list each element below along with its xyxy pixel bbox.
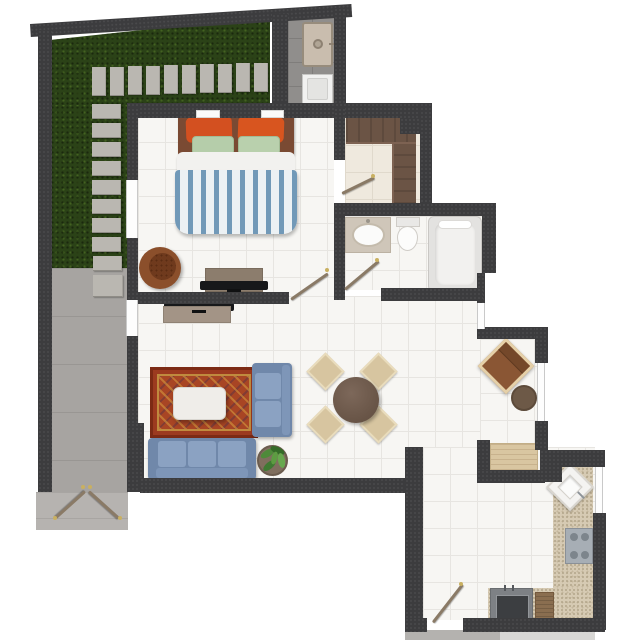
paver-stone [92,104,121,119]
burner [581,533,589,541]
utility-sink [302,22,333,67]
closet-corner-block [400,118,420,134]
nook-wall-right-lower [535,421,548,450]
coffee-table [173,387,226,420]
paver-stone [92,67,106,96]
corner-sink-faucet [577,491,585,499]
burner [570,551,578,559]
bedroom-wall-bottom [127,292,289,304]
round-chair-cushion [149,253,176,280]
bathtub [428,216,482,292]
unit-faucet [512,585,514,591]
chaise-cushion [255,401,281,427]
bathtub-pillow [438,220,472,229]
kitchen-wall-top [560,450,605,467]
oven-sink-unit [490,588,533,622]
bedroom-window [126,180,138,238]
vanity-faucet [366,219,370,223]
sofa-cushion [188,441,216,467]
round-lounge-chair [139,247,181,289]
burner [570,533,578,541]
nook-window [537,363,545,421]
unit-basin [496,595,529,619]
nook-wall-right-upper [535,327,548,363]
dining-table [333,377,379,423]
built-in-counter [490,443,538,471]
paver-stone [218,64,232,93]
living-wall-bottom [140,478,405,493]
bathroom-wall-top [334,203,495,216]
kitchen-wall-bottom-left [405,618,427,632]
kitchen-door-handle [459,582,463,586]
niche-wall-bottom [477,470,545,483]
paver-stone [92,237,121,252]
paver-stone [92,123,121,138]
bathroom-wall-right [482,203,496,273]
paver-stone [200,64,214,93]
entry-door-hinge [118,516,122,520]
living-tv-stand [192,310,206,313]
paver-stone [92,161,121,176]
chaise-back [282,365,290,435]
wall-shelf-right [261,110,284,118]
kitchen-wall-bottom-right [463,618,605,632]
paver-stone [254,63,268,92]
bathroom-door-handle [375,258,379,262]
sofa-chaise [252,363,292,437]
cooktop [565,528,593,564]
paver-stone [236,63,250,92]
paver-stone [93,275,123,297]
sofa-cushion [218,441,246,467]
kitchen-wall-right [593,513,606,630]
laundry-wall-left [272,14,288,110]
sofa-three-seat [148,438,256,480]
entry-porch [36,492,128,530]
paver-stone [146,66,160,95]
utility-sink-drain [313,39,323,49]
entry-door-handle [81,485,85,489]
paver-stone [92,142,121,157]
paver-stone [93,256,122,271]
bed-duvet-striped [175,170,297,234]
paver-stone [128,66,142,95]
paver-stone [92,199,121,214]
living-window [126,300,138,336]
nook-side-table [511,385,537,411]
laundry-wall-right [334,8,346,110]
paver-stone [110,67,124,96]
closet-door-handle [371,174,375,178]
burner [581,551,589,559]
paver-stone [92,180,121,195]
bathroom-vanity [345,217,391,253]
wall-shelf-left [196,110,220,118]
bathtub-basin [435,223,475,285]
entry-door-handle [88,485,92,489]
living-tv-console [163,306,231,323]
entry-door-hinge [53,516,57,520]
closet-wall-right [420,103,432,210]
bedroom-closet-divider-upper [334,108,345,160]
unit-faucet [504,585,506,591]
hall-wall-left [405,447,423,630]
bathroom-wall-bottom [381,288,483,301]
paver-stone [164,65,178,94]
sofa-back [156,468,248,478]
washing-machine-lid [307,78,328,100]
hall-window [477,303,485,329]
bedroom-door-handle [325,268,329,272]
sofa-cushion [158,441,186,467]
outer-wall-left [38,30,52,492]
paver-stone [92,218,121,233]
paver-stone [182,65,196,94]
bedroom-bath-divider-lower [334,205,345,300]
chaise-cushion [255,373,281,399]
wardrobe-right-run [392,144,416,204]
entry-walkway [52,268,127,492]
kitchen-window [595,467,603,513]
kitchen-corner-block [540,450,562,482]
floor-plan [0,0,640,640]
washing-machine [302,74,333,104]
vanity-sink-basin [352,223,385,247]
